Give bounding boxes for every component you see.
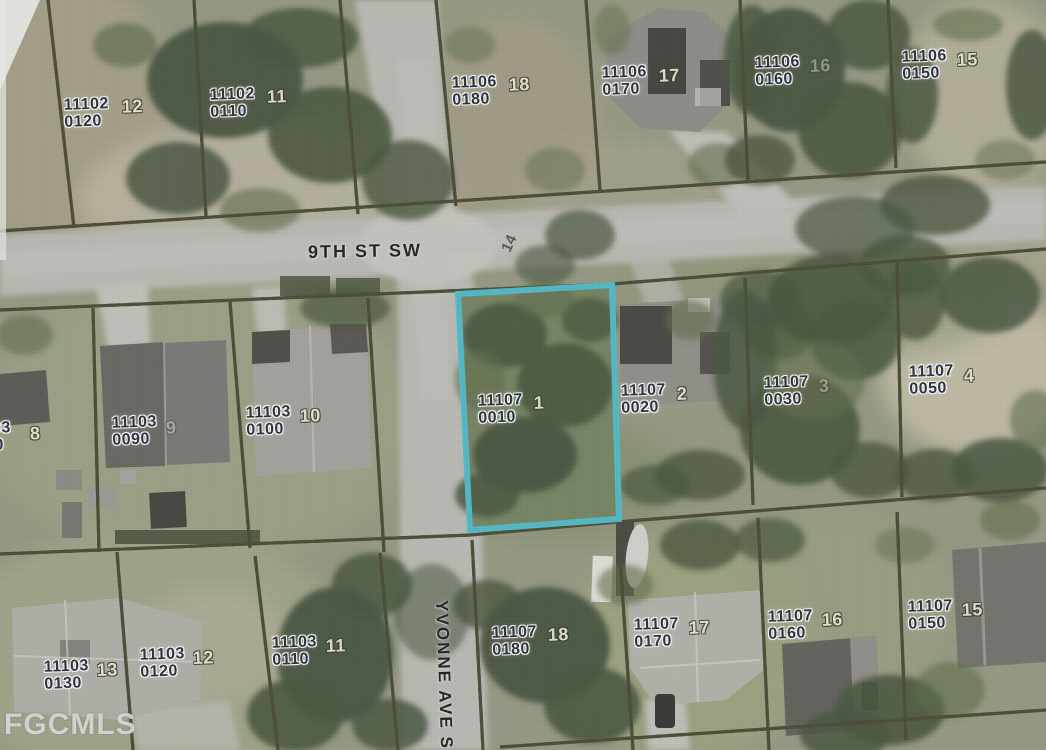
- parcel-suffix: 0120: [140, 662, 186, 681]
- parcel-label: 11106 0180 18: [451, 73, 497, 109]
- parcel-suffix: 0100: [246, 420, 292, 439]
- parcel-label: 11106 0170 17: [601, 63, 647, 99]
- parcel-label: 11103 0080 8: [0, 419, 12, 455]
- parcel-id: 11107: [477, 391, 523, 410]
- parcel-label: 11107 0150 15: [907, 597, 953, 633]
- parcel-suffix: 0020: [621, 398, 667, 417]
- parcel-id: 11107: [767, 607, 813, 626]
- parcel-id: 11103: [271, 633, 317, 652]
- parcel-suffix: 0090: [112, 430, 158, 449]
- lot-number: 9: [166, 419, 177, 437]
- parcel-id: 11103: [139, 645, 185, 664]
- lot-number: 4: [964, 367, 975, 385]
- lot-number: 13: [97, 660, 119, 679]
- lot-number: 11: [326, 636, 347, 655]
- parcel-id: 11103: [111, 413, 157, 432]
- parcel-id: 11106: [601, 63, 647, 82]
- parcel-suffix: 0170: [634, 632, 680, 651]
- parcel-label: 11103 0130 13: [43, 657, 89, 693]
- parcel-id: 11107: [908, 362, 954, 381]
- lot-number: 12: [121, 97, 143, 116]
- parcel-label: 11107 0010 1: [477, 391, 523, 427]
- parcel-suffix: 0110: [272, 650, 318, 669]
- lot-number: 18: [508, 75, 530, 94]
- parcel-id: 11103: [245, 403, 291, 422]
- parcel-id: 11103: [43, 657, 89, 676]
- parcel-id: 11106: [901, 47, 947, 66]
- labels-layer: 11102 0120 12 11102 0110 11 11106 0180 1…: [0, 0, 1046, 750]
- parcel-label: 11107 0170 17: [633, 615, 679, 651]
- parcel-suffix: 0050: [909, 379, 955, 398]
- lot-number: 18: [547, 625, 569, 644]
- parcel-suffix: 0010: [478, 408, 524, 427]
- fgcmls-watermark: FGCMLS: [4, 710, 137, 740]
- parcel-id: 11107: [633, 615, 679, 634]
- parcel-label: 11107 0050 4: [908, 362, 954, 398]
- parcel-suffix: 0160: [768, 624, 814, 643]
- parcel-suffix: 0080: [0, 436, 12, 455]
- parcel-label: 11107 0030 3: [763, 373, 809, 409]
- aerial-parcel-map: 11102 0120 12 11102 0110 11 11106 0180 1…: [0, 0, 1046, 750]
- parcel-label: 11107 0160 16: [767, 607, 813, 643]
- lot-number: 17: [659, 66, 681, 85]
- lot-number: 16: [810, 56, 832, 75]
- parcel-label: 11103 0110 11: [271, 633, 317, 669]
- parcel-suffix: 0160: [755, 70, 801, 89]
- lot-number: 8: [30, 424, 41, 442]
- parcel-suffix: 0170: [602, 80, 648, 99]
- parcel-suffix: 0130: [44, 674, 90, 693]
- parcel-suffix: 0110: [210, 102, 256, 121]
- parcel-suffix: 0180: [492, 640, 538, 659]
- lot-number: 1: [533, 393, 544, 411]
- lot-number: 17: [689, 618, 711, 637]
- parcel-label: 11103 0100 10: [245, 403, 291, 439]
- parcel-id: 11107: [763, 373, 809, 392]
- parcel-suffix: 0150: [908, 614, 954, 633]
- lot-number: 3: [819, 377, 830, 395]
- parcel-label: 11103 0120 12: [139, 645, 185, 681]
- parcel-id: 11107: [620, 381, 666, 400]
- lot-number: 2: [677, 384, 688, 402]
- lot-number: 16: [822, 610, 844, 629]
- parcel-id: 11106: [754, 53, 800, 72]
- parcel-id: 11102: [63, 95, 109, 114]
- parcel-label: 11103 0090 9: [111, 413, 157, 449]
- street-label-9th-st-sw: 9TH ST SW: [308, 241, 422, 261]
- parcel-suffix: 0180: [452, 90, 498, 109]
- parcel-id: 11102: [209, 85, 255, 104]
- parcel-label: 11106 0150 15: [901, 47, 947, 83]
- lot-number: 15: [962, 600, 984, 619]
- parcel-label: 11102 0110 11: [209, 85, 255, 121]
- parcel-label: 11106 0160 16: [754, 53, 800, 89]
- lot-number: 12: [193, 648, 215, 667]
- parcel-label: 11107 0020 2: [620, 381, 666, 417]
- lot-number: 15: [957, 50, 979, 69]
- parcel-suffix: 0030: [764, 390, 810, 409]
- lot-number: 11: [266, 87, 287, 106]
- parcel-id: 11107: [491, 623, 537, 642]
- parcel-label: 11102 0120 12: [63, 95, 109, 131]
- parcel-id: 11107: [907, 597, 953, 616]
- parcel-suffix: 0120: [64, 112, 110, 131]
- street-label-yvonne-ave-s: YVONNE AVE S: [432, 600, 455, 750]
- parcel-suffix: 0150: [902, 64, 948, 83]
- lot-number: 10: [300, 406, 322, 425]
- parcel-label: 11107 0180 18: [491, 623, 537, 659]
- parcel-id: 11103: [0, 419, 11, 438]
- parcel-id: 11106: [451, 73, 497, 92]
